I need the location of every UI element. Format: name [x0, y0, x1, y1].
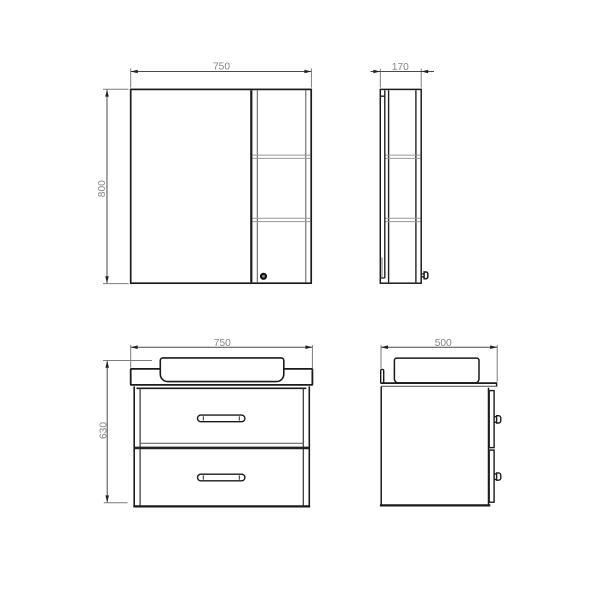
- svg-text:170: 170: [392, 62, 409, 73]
- svg-text:630: 630: [98, 422, 109, 439]
- svg-text:800: 800: [97, 180, 108, 197]
- svg-text:750: 750: [214, 338, 231, 349]
- svg-text:500: 500: [435, 338, 452, 349]
- svg-text:750: 750: [213, 62, 230, 73]
